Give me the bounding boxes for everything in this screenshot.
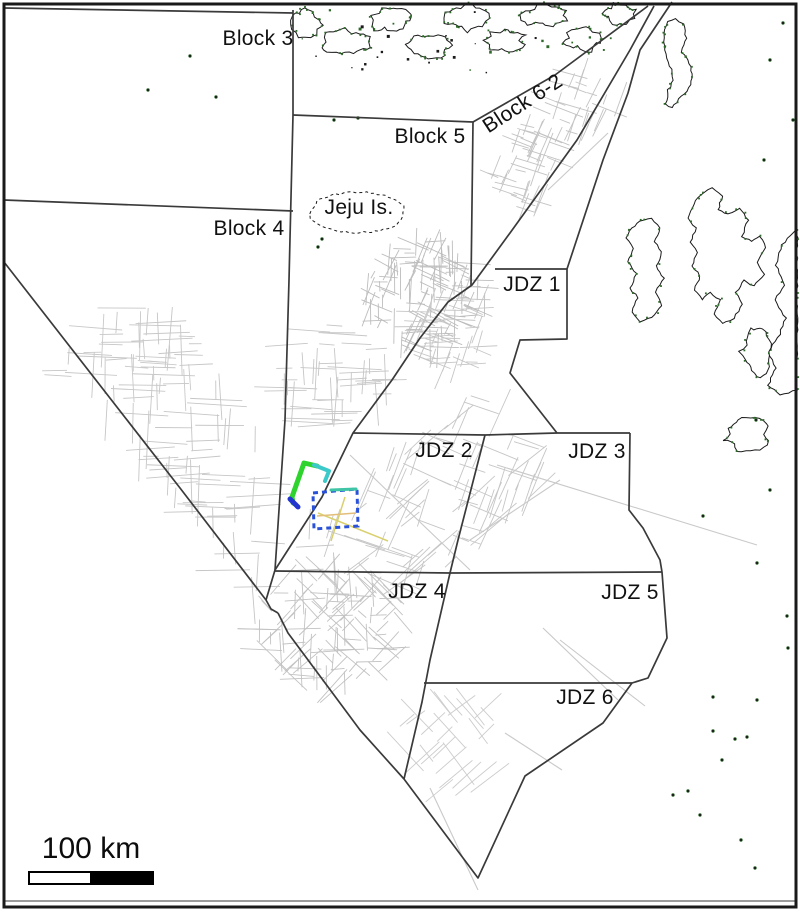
- seismic-line: [319, 344, 334, 345]
- seismic-line: [251, 477, 255, 534]
- coast-speckle: [456, 26, 458, 28]
- seismic-line: [158, 351, 197, 354]
- seismic-line: [288, 329, 330, 332]
- coast-speckle: [702, 192, 704, 194]
- seismic-line: [594, 109, 603, 131]
- boundary-vertex-link: [266, 570, 275, 600]
- seismic-line: [300, 368, 335, 369]
- coast-fragment: [469, 69, 470, 70]
- coast-speckle: [765, 439, 767, 441]
- coast-fragment: [436, 50, 439, 53]
- coast-speckle: [646, 317, 648, 319]
- coast-speckle: [449, 11, 451, 13]
- seismic-line: [366, 624, 367, 651]
- seismic-line: [140, 311, 141, 360]
- coast-fragment: [610, 37, 612, 39]
- seismic-line: [69, 326, 122, 330]
- island-path-coast-blob: [371, 8, 411, 31]
- island-path-tsushima: [664, 19, 693, 108]
- seismic-line: [369, 627, 395, 650]
- seismic-line: [330, 377, 332, 424]
- label-block-3: Block 3: [223, 27, 294, 51]
- coast-speckle: [749, 333, 751, 335]
- coast-fragment: [351, 67, 352, 68]
- seismic-line: [384, 608, 396, 620]
- islet-dot: [147, 89, 150, 92]
- seismic-line: [248, 478, 270, 479]
- seismic-line: [344, 671, 345, 694]
- coast-fragment: [475, 43, 476, 44]
- seismic-line: [349, 662, 357, 672]
- seismic-line: [511, 163, 547, 175]
- seismic-line: [196, 570, 250, 571]
- seismic-line: [332, 420, 353, 421]
- seismic-line: [471, 396, 490, 402]
- coast-speckle: [768, 387, 770, 389]
- coast-speckle: [405, 22, 407, 24]
- seismic-line: [574, 58, 588, 99]
- coast-speckle: [452, 8, 454, 10]
- coast-fragment: [377, 56, 379, 58]
- coast-speckle: [441, 58, 443, 60]
- seismic-line: [322, 333, 367, 336]
- scale-bar: [28, 871, 154, 885]
- islet-dot: [699, 814, 702, 817]
- seismic-line: [361, 300, 392, 312]
- seismic-line: [106, 359, 127, 361]
- seismic-line: [359, 563, 391, 595]
- seismic-line: [534, 184, 548, 216]
- seismic-line: [456, 299, 490, 300]
- coast-speckle: [730, 427, 732, 429]
- label-block-5: Block 5: [395, 125, 466, 149]
- seismic-line: [191, 449, 212, 451]
- coast-speckle: [629, 8, 631, 10]
- islet-dot: [215, 96, 218, 99]
- seismic-long-line: [505, 733, 562, 770]
- coast-speckle: [682, 24, 684, 26]
- coast-speckle: [359, 34, 361, 36]
- seismic-line: [170, 482, 198, 484]
- seismic-line: [405, 270, 416, 290]
- seismic-line: [394, 612, 412, 633]
- coast-speckle: [508, 52, 510, 54]
- island-path-coast-blob: [602, 3, 636, 26]
- coast-speckle: [627, 6, 629, 8]
- islet-dot: [769, 489, 772, 492]
- coast-speckle: [669, 88, 671, 90]
- coast-speckle: [781, 281, 783, 283]
- coast-speckle: [640, 219, 642, 221]
- seismic-line: [390, 257, 417, 258]
- coast-speckle: [521, 12, 523, 14]
- coast-speckle: [664, 103, 666, 105]
- coast-speckle: [588, 53, 590, 55]
- seismic-line: [398, 237, 429, 250]
- seismic-line: [528, 119, 545, 153]
- coast-speckle: [304, 6, 306, 8]
- seismic-line: [466, 280, 494, 281]
- coast-speckle: [635, 314, 637, 316]
- coast-speckle: [715, 305, 717, 307]
- coast-speckle: [662, 42, 664, 44]
- coast-speckle: [339, 52, 341, 54]
- islet-dot: [333, 119, 336, 122]
- coast-speckle: [381, 8, 383, 10]
- coast-speckle: [521, 41, 523, 43]
- coast-speckle: [616, 25, 618, 27]
- seismic-line: [560, 119, 570, 123]
- coast-speckle: [516, 50, 518, 52]
- seismic-line: [479, 500, 502, 550]
- seismic-line: [576, 82, 587, 86]
- seismic-line: [426, 779, 453, 802]
- seismic-line: [445, 556, 457, 567]
- seismic-line: [180, 478, 220, 480]
- coast-speckle: [630, 268, 632, 270]
- coast-speckle: [630, 255, 632, 257]
- coast-speckle: [766, 335, 768, 337]
- coast-speckle: [664, 33, 666, 35]
- coast-speckle: [718, 304, 720, 306]
- coast-speckle: [602, 14, 604, 16]
- island-path-coast-blob: [563, 27, 602, 53]
- boundary-east-vertical: [275, 10, 293, 570]
- coast-speckle: [753, 417, 755, 419]
- coast-fragment: [445, 35, 447, 37]
- island-path-goto-west: [626, 218, 664, 322]
- seismic-line: [362, 360, 364, 394]
- coast-speckle: [781, 245, 783, 247]
- coast-speckle: [519, 49, 521, 51]
- seismic-line: [370, 615, 387, 616]
- seismic-line: [454, 310, 455, 343]
- coast-speckle: [529, 11, 531, 13]
- seismic-line: [240, 649, 282, 651]
- coast-speckle: [562, 43, 564, 45]
- coast-speckle: [511, 31, 513, 33]
- seismic-line: [311, 413, 357, 414]
- seismic-line: [256, 554, 258, 591]
- coast-fragment: [407, 58, 409, 60]
- label-block-4: Block 4: [214, 217, 285, 241]
- seismic-line: [326, 588, 327, 609]
- seismic-line: [525, 180, 530, 197]
- coast-speckle: [600, 31, 602, 33]
- coast-speckle: [691, 66, 693, 68]
- coast-speckle: [436, 58, 438, 60]
- coast-speckle: [671, 73, 673, 75]
- seismic-line: [522, 474, 535, 512]
- boundary-hypotenuse: [4, 262, 278, 613]
- seismic-line: [387, 561, 418, 571]
- coast-speckle: [445, 12, 447, 14]
- seismic-line: [68, 348, 69, 365]
- seismic-line: [356, 668, 366, 678]
- survey-outline-cyan: [314, 465, 329, 481]
- seismic-long-line: [430, 788, 478, 890]
- seismic-line: [423, 238, 431, 257]
- coast-speckle: [662, 32, 664, 34]
- seismic-line: [363, 277, 375, 305]
- coast-speckle: [576, 28, 578, 30]
- coast-fragment: [361, 25, 364, 28]
- boundary-jdz4-west: [278, 613, 404, 779]
- seismic-line: [437, 727, 452, 742]
- boundary-jdz-north: [353, 433, 630, 435]
- coast-speckle: [557, 7, 559, 9]
- seismic-line: [351, 372, 352, 402]
- coast-speckle: [489, 48, 491, 50]
- seismic-line: [429, 288, 435, 308]
- coast-speckle: [341, 53, 343, 55]
- seismic-line: [275, 649, 296, 670]
- coast-fragment: [589, 36, 591, 38]
- coast-speckle: [731, 441, 733, 443]
- boundary-top-line: [4, 8, 293, 13]
- coast-speckle: [371, 26, 373, 28]
- coast-fragment: [450, 39, 453, 42]
- seismic-line: [113, 385, 114, 401]
- coast-speckle: [744, 360, 746, 362]
- islet-dot: [782, 22, 785, 25]
- seismic-line: [219, 374, 222, 420]
- coast-speckle: [691, 76, 693, 78]
- seismic-line: [522, 462, 544, 516]
- coast-speckle: [684, 93, 686, 95]
- seismic-line: [435, 300, 474, 302]
- seismic-line: [358, 611, 366, 618]
- seismic-line: [207, 516, 237, 517]
- seismic-line: [285, 628, 321, 629]
- coast-fragment: [486, 72, 487, 73]
- islet-dot: [672, 794, 675, 797]
- label-jdz-5: JDZ 5: [601, 581, 659, 605]
- seismic-line: [167, 456, 169, 495]
- seismic-line: [569, 73, 575, 87]
- coast-speckle: [664, 26, 666, 28]
- seismic-line: [361, 288, 380, 298]
- seismic-line: [282, 421, 333, 424]
- coast-speckle: [604, 15, 606, 17]
- islet-dot: [756, 562, 759, 565]
- islet-dot: [317, 246, 320, 249]
- seismic-line: [174, 456, 220, 460]
- seismic-line: [342, 343, 372, 344]
- coast-speckle: [443, 21, 445, 23]
- seismic-line: [386, 505, 402, 519]
- coast-speckle: [767, 440, 769, 442]
- islet-dot: [734, 738, 737, 741]
- islet-dot: [712, 696, 715, 699]
- seismic-line: [213, 508, 214, 538]
- islet-dot: [769, 59, 772, 62]
- seismic-line: [140, 362, 176, 364]
- seismic-line: [502, 490, 508, 512]
- coast-fragment: [428, 62, 430, 64]
- coast-speckle: [518, 15, 520, 17]
- seismic-line: [351, 571, 376, 594]
- coast-speckle: [424, 36, 426, 38]
- coast-speckle: [677, 101, 679, 103]
- label-jdz-3: JDZ 3: [568, 440, 626, 464]
- seismic-line: [444, 416, 460, 429]
- seismic-line: [331, 668, 345, 669]
- coast-speckle: [588, 26, 590, 28]
- coast-speckle: [658, 301, 660, 303]
- coast-speckle: [316, 35, 318, 37]
- coast-speckle: [606, 16, 608, 18]
- coast-speckle: [664, 46, 666, 48]
- seismic-line: [150, 375, 153, 424]
- seismic-line: [338, 378, 367, 380]
- boundary-jdz3-east: [629, 433, 662, 572]
- coast-fragment: [364, 63, 366, 65]
- coast-speckle: [299, 8, 301, 10]
- coast-speckle: [755, 376, 757, 378]
- coast-speckle: [607, 7, 609, 9]
- coast-speckle: [775, 390, 777, 392]
- islet-dot: [702, 515, 705, 518]
- seismic-line: [317, 669, 347, 702]
- coast-speckle: [627, 234, 629, 236]
- seismic-line: [189, 364, 191, 390]
- seismic-line: [495, 182, 529, 190]
- seismic-line: [425, 339, 437, 342]
- coast-speckle: [682, 52, 684, 54]
- islet-dot: [754, 867, 757, 870]
- seismic-line: [144, 441, 187, 444]
- islet-dot: [746, 736, 749, 739]
- seismic-line: [132, 403, 133, 444]
- coast-speckle: [639, 321, 641, 323]
- seismic-line: [427, 310, 464, 311]
- seismic-line: [174, 355, 202, 356]
- coast-speckle: [720, 199, 722, 201]
- seismic-line: [327, 325, 343, 326]
- coast-speckle: [444, 51, 446, 53]
- seismic-line: [507, 436, 513, 450]
- seismic-line: [335, 573, 346, 583]
- island-path-coast-blob: [291, 8, 324, 38]
- seismic-line: [179, 364, 212, 366]
- seismic-line: [139, 322, 140, 347]
- coast-speckle: [318, 18, 320, 20]
- seismic-line: [477, 443, 518, 460]
- island-path-kyushu-edge: [768, 229, 798, 395]
- coast-speckle: [691, 208, 693, 210]
- seismic-long-line: [350, 455, 470, 570]
- seismic-line: [377, 621, 388, 632]
- islet-dot: [740, 839, 743, 842]
- seismic-line: [414, 354, 451, 368]
- coast-speckle: [452, 23, 454, 25]
- coast-fragment: [315, 56, 316, 57]
- coast-speckle: [389, 8, 391, 10]
- seismic-line: [105, 400, 107, 441]
- coast-speckle: [564, 11, 566, 13]
- coast-speckle: [296, 30, 298, 32]
- coast-speckle: [744, 238, 746, 240]
- coast-speckle: [666, 24, 668, 26]
- seismic-line: [454, 261, 455, 295]
- coast-speckle: [379, 11, 381, 13]
- seismic-line: [535, 172, 549, 212]
- seismic-line: [517, 128, 547, 138]
- seismic-line: [309, 509, 310, 539]
- coast-speckle: [698, 275, 700, 277]
- seismic-line: [448, 695, 475, 715]
- seismic-line: [282, 642, 305, 644]
- seismic-line: [285, 598, 326, 601]
- seismic-line: [514, 442, 539, 449]
- coast-fragment: [489, 51, 492, 54]
- coast-speckle: [744, 212, 746, 214]
- coast-speckle: [504, 29, 506, 31]
- seismic-line: [412, 266, 444, 281]
- coast-speckle: [422, 35, 424, 37]
- islet-dot: [756, 699, 759, 702]
- coast-speckle: [373, 28, 375, 30]
- seismic-line: [132, 374, 195, 376]
- coast-fragment: [546, 45, 549, 48]
- islet-dot: [755, 419, 758, 422]
- islet-dot: [792, 119, 795, 122]
- seismic-line: [119, 385, 166, 386]
- coast-speckle: [735, 293, 737, 295]
- coast-speckle: [744, 339, 746, 341]
- seismic-line: [202, 474, 245, 476]
- seismic-line: [393, 249, 410, 250]
- coast-speckle: [760, 419, 762, 421]
- coast-speckle: [368, 40, 370, 42]
- seismic-line: [129, 325, 180, 326]
- seismic-line: [427, 333, 454, 334]
- seismic-line: [77, 356, 136, 358]
- coast-speckle: [725, 211, 727, 213]
- coast-speckle: [657, 312, 659, 314]
- boundary-mid-horizontal: [275, 571, 662, 573]
- coast-speckle: [555, 23, 557, 25]
- seismic-line: [313, 359, 314, 384]
- seismic-line: [368, 661, 387, 680]
- seismic-line: [196, 484, 241, 486]
- coast-speckle: [589, 28, 591, 30]
- seismic-line: [416, 228, 417, 256]
- seismic-line: [538, 133, 553, 172]
- coast-speckle: [424, 56, 426, 58]
- coast-speckle: [363, 49, 365, 51]
- coast-speckle: [760, 235, 762, 237]
- coast-speckle: [750, 284, 752, 286]
- seismic-line: [136, 321, 187, 324]
- coast-speckle: [365, 49, 367, 51]
- coast-speckle: [312, 12, 314, 14]
- coast-speckle: [694, 268, 696, 270]
- seismic-line: [444, 315, 478, 328]
- coast-speckle: [324, 32, 326, 34]
- boundary-block3-4-line: [4, 200, 293, 211]
- seismic-line: [356, 587, 357, 599]
- coast-fragment: [474, 11, 476, 13]
- islet-dot: [786, 615, 789, 618]
- coast-speckle: [659, 263, 661, 265]
- seismic-line: [101, 314, 104, 367]
- seismic-line: [319, 363, 343, 364]
- coast-speckle: [335, 30, 337, 32]
- islet-dot: [721, 759, 724, 762]
- coast-speckle: [669, 83, 671, 85]
